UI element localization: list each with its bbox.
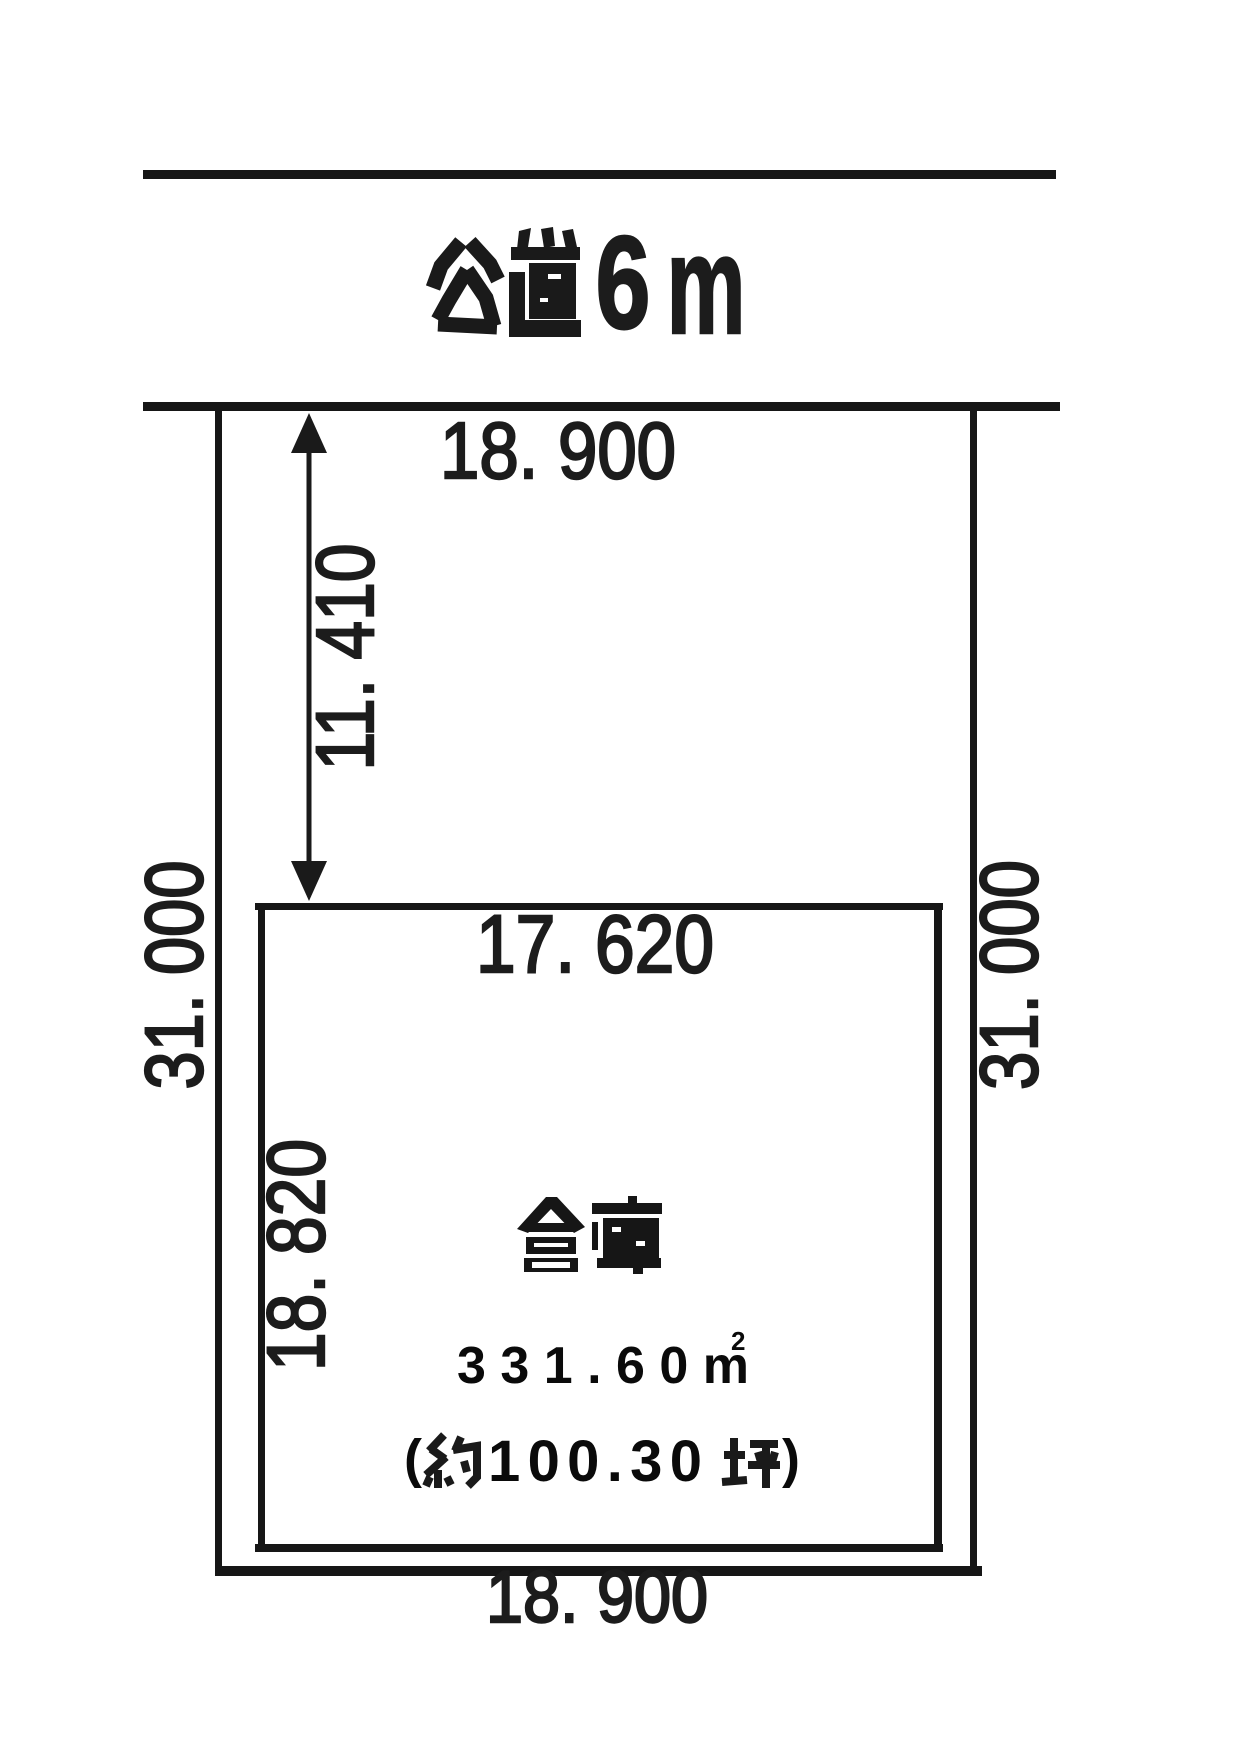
svg-text:18. 820: 18. 820 — [251, 1139, 342, 1371]
svg-text:18. 900: 18. 900 — [440, 406, 676, 495]
svg-text:31. 000: 31. 000 — [964, 860, 1055, 1090]
svg-text:100.30: 100.30 — [488, 1429, 702, 1494]
svg-text:2: 2 — [731, 1326, 745, 1356]
svg-text:18. 900: 18. 900 — [486, 1557, 708, 1638]
svg-text:31. 000: 31. 000 — [129, 861, 220, 1090]
svg-text:m: m — [667, 206, 746, 363]
svg-text:6: 6 — [596, 209, 651, 356]
svg-text:331.60m: 331.60m — [457, 1337, 749, 1395]
svg-text:(: ( — [404, 1429, 422, 1489]
svg-text:): ) — [782, 1429, 800, 1489]
svg-text:11. 410: 11. 410 — [300, 544, 391, 771]
svg-text:17. 620: 17. 620 — [476, 899, 714, 990]
